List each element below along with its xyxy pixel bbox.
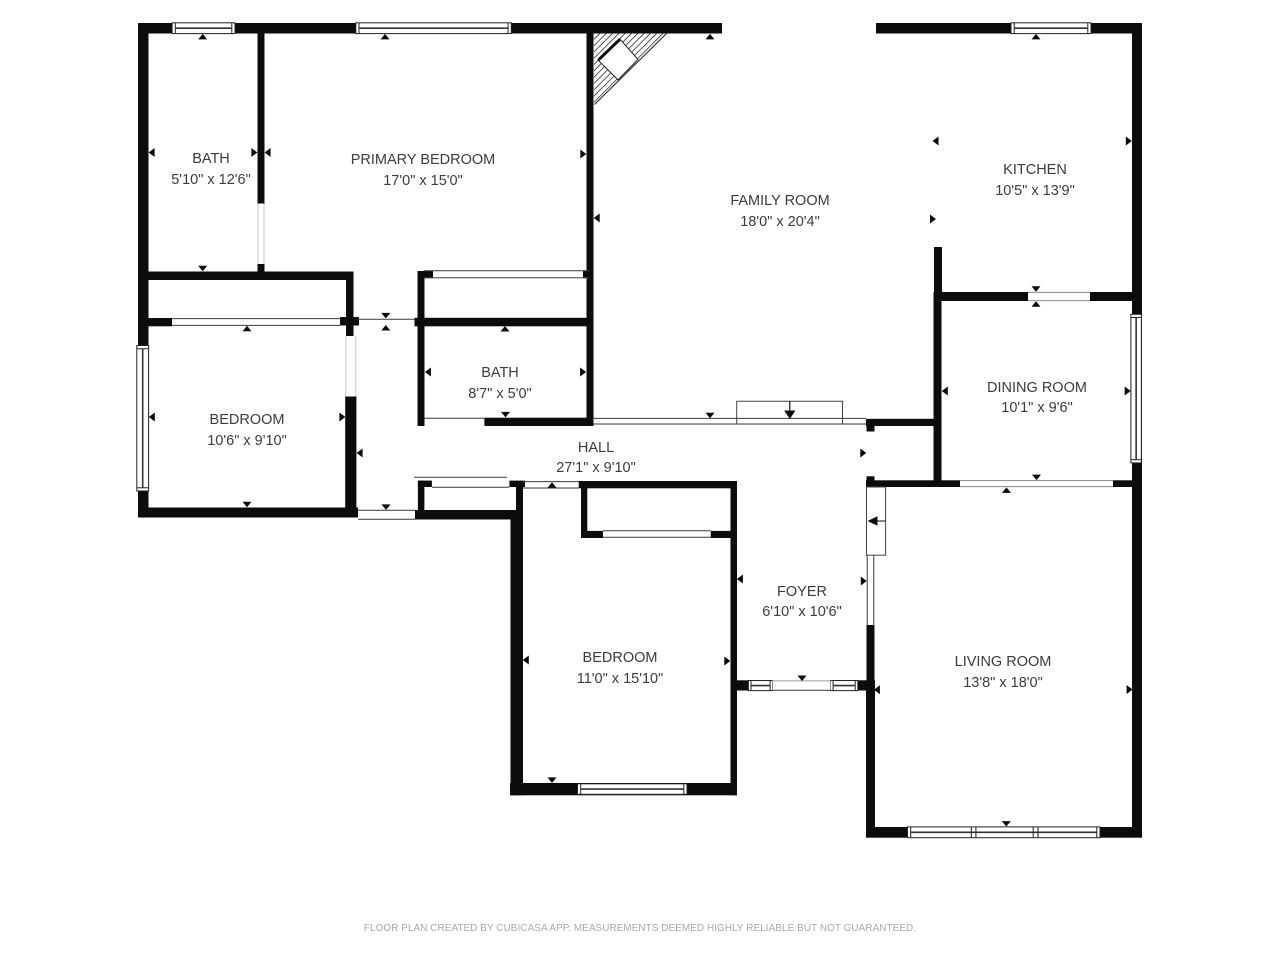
svg-text:HALL: HALL — [578, 440, 614, 456]
svg-text:5'10" x 12'6": 5'10" x 12'6" — [171, 172, 251, 188]
svg-text:10'5" x 13'9": 10'5" x 13'9" — [995, 183, 1075, 199]
svg-text:8'7" x 5'0": 8'7" x 5'0" — [468, 386, 531, 402]
svg-text:27'1" x 9'10": 27'1" x 9'10" — [556, 460, 636, 476]
svg-text:BEDROOM: BEDROOM — [583, 650, 658, 666]
svg-text:BATH: BATH — [192, 151, 230, 167]
svg-text:17'0" x 15'0": 17'0" x 15'0" — [383, 173, 463, 189]
svg-text:KITCHEN: KITCHEN — [1003, 162, 1067, 178]
svg-text:10'1" x 9'6": 10'1" x 9'6" — [1001, 400, 1072, 416]
svg-text:BATH: BATH — [481, 365, 519, 381]
svg-text:LIVING ROOM: LIVING ROOM — [955, 654, 1052, 670]
svg-text:FOYER: FOYER — [777, 584, 827, 600]
svg-text:6'10" x 10'6": 6'10" x 10'6" — [762, 604, 842, 620]
svg-text:PRIMARY BEDROOM: PRIMARY BEDROOM — [351, 152, 496, 168]
svg-text:10'6" x 9'10": 10'6" x 9'10" — [207, 433, 287, 449]
svg-text:FLOOR PLAN CREATED BY CUBICASA: FLOOR PLAN CREATED BY CUBICASA APP. MEAS… — [364, 923, 916, 934]
svg-text:FAMILY ROOM: FAMILY ROOM — [730, 193, 829, 209]
svg-text:BEDROOM: BEDROOM — [210, 412, 285, 428]
svg-text:18'0" x 20'4": 18'0" x 20'4" — [740, 214, 820, 230]
svg-text:DINING ROOM: DINING ROOM — [987, 380, 1087, 396]
svg-text:11'0" x 15'10": 11'0" x 15'10" — [577, 671, 664, 687]
svg-text:13'8" x 18'0": 13'8" x 18'0" — [963, 675, 1043, 691]
